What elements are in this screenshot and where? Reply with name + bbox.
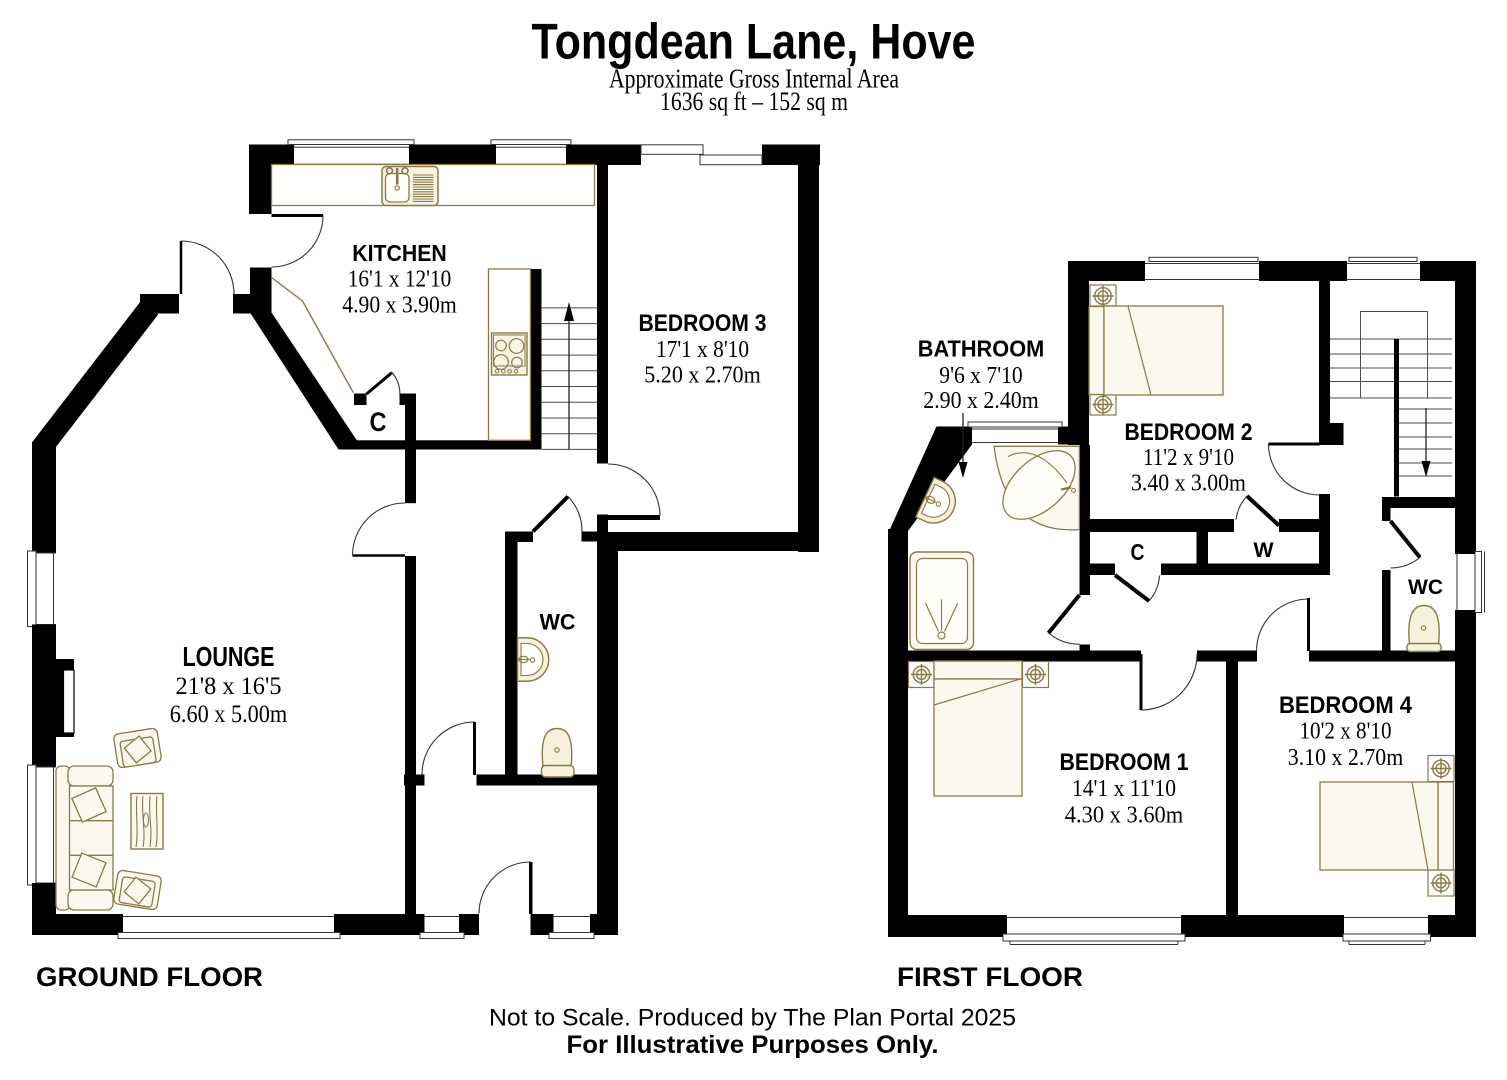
svg-text:14'1 x 11'10: 14'1 x 11'10 (1072, 776, 1176, 802)
svg-text:3.10 x 2.70m: 3.10 x 2.70m (1288, 745, 1404, 771)
svg-text:9'6 x 7'10: 9'6 x 7'10 (939, 363, 1023, 389)
svg-text:BEDROOM 2: BEDROOM 2 (1125, 419, 1253, 446)
svg-text:17'1 x 8'10: 17'1 x 8'10 (656, 337, 749, 363)
svg-text:For Illustrative Purposes Only: For Illustrative Purposes Only. (567, 1031, 939, 1059)
svg-text:BEDROOM 4: BEDROOM 4 (1279, 692, 1413, 719)
svg-text:16'1 x 12'10: 16'1 x 12'10 (348, 267, 452, 293)
svg-text:1636 sq ft – 152 sq m: 1636 sq ft – 152 sq m (660, 86, 848, 116)
svg-text:4.30 x 3.60m: 4.30 x 3.60m (1065, 803, 1184, 829)
svg-text:Tongdean Lane, Hove: Tongdean Lane, Hove (532, 13, 976, 70)
svg-text:10'2 x 8'10: 10'2 x 8'10 (1300, 719, 1392, 745)
svg-text:C: C (370, 407, 387, 437)
svg-text:C: C (1131, 539, 1145, 565)
svg-text:BEDROOM 3: BEDROOM 3 (639, 310, 767, 337)
svg-text:FIRST FLOOR: FIRST FLOOR (897, 962, 1083, 992)
svg-text:2.90 x 2.40m: 2.90 x 2.40m (923, 388, 1039, 414)
svg-text:5.20 x 2.70m: 5.20 x 2.70m (644, 363, 761, 389)
svg-text:BATHROOM: BATHROOM (918, 336, 1045, 362)
svg-text:LOUNGE: LOUNGE (183, 641, 275, 672)
svg-text:WC: WC (540, 610, 576, 635)
svg-text:3.40 x 3.00m: 3.40 x 3.00m (1131, 471, 1246, 497)
svg-text:21'8 x 16'5: 21'8 x 16'5 (176, 671, 282, 700)
svg-text:6.60 x 5.00m: 6.60 x 5.00m (170, 699, 288, 728)
svg-text:Not to Scale. Produced by The: Not to Scale. Produced by The Plan Porta… (489, 1005, 1016, 1032)
svg-text:BEDROOM 1: BEDROOM 1 (1060, 749, 1189, 776)
svg-text:KITCHEN: KITCHEN (352, 240, 447, 266)
svg-text:GROUND FLOOR: GROUND FLOOR (36, 962, 263, 992)
svg-text:WC: WC (1408, 576, 1443, 599)
svg-text:W: W (1254, 538, 1275, 562)
svg-text:11'2 x 9'10: 11'2 x 9'10 (1143, 445, 1234, 471)
svg-text:4.90 x 3.90m: 4.90 x 3.90m (342, 293, 457, 319)
